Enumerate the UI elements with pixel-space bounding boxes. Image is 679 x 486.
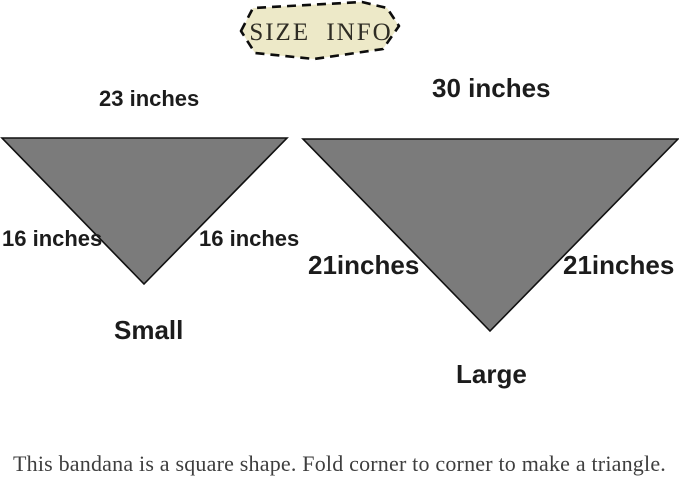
small-size-name: Small: [114, 315, 183, 346]
large-size-name: Large: [456, 359, 527, 390]
page-title: SIZE INFO: [236, 0, 406, 62]
large-bandana-diagram: [301, 136, 679, 335]
small-right-measurement: 16 inches: [199, 226, 299, 252]
large-top-measurement: 30 inches: [432, 73, 551, 104]
size-info-page: SIZE INFO 23 inches 16 inches 16 inches …: [0, 0, 679, 486]
small-bandana-triangle: [2, 138, 287, 284]
large-left-measurement: 21inches: [308, 250, 419, 281]
title-badge: SIZE INFO: [236, 0, 406, 66]
footer-note: This bandana is a square shape. Fold cor…: [0, 451, 679, 477]
large-right-measurement: 21inches: [563, 250, 674, 281]
small-top-measurement: 23 inches: [99, 86, 199, 112]
small-left-measurement: 16 inches: [2, 226, 102, 252]
small-bandana-diagram: [0, 135, 290, 288]
large-bandana-triangle: [303, 139, 678, 331]
